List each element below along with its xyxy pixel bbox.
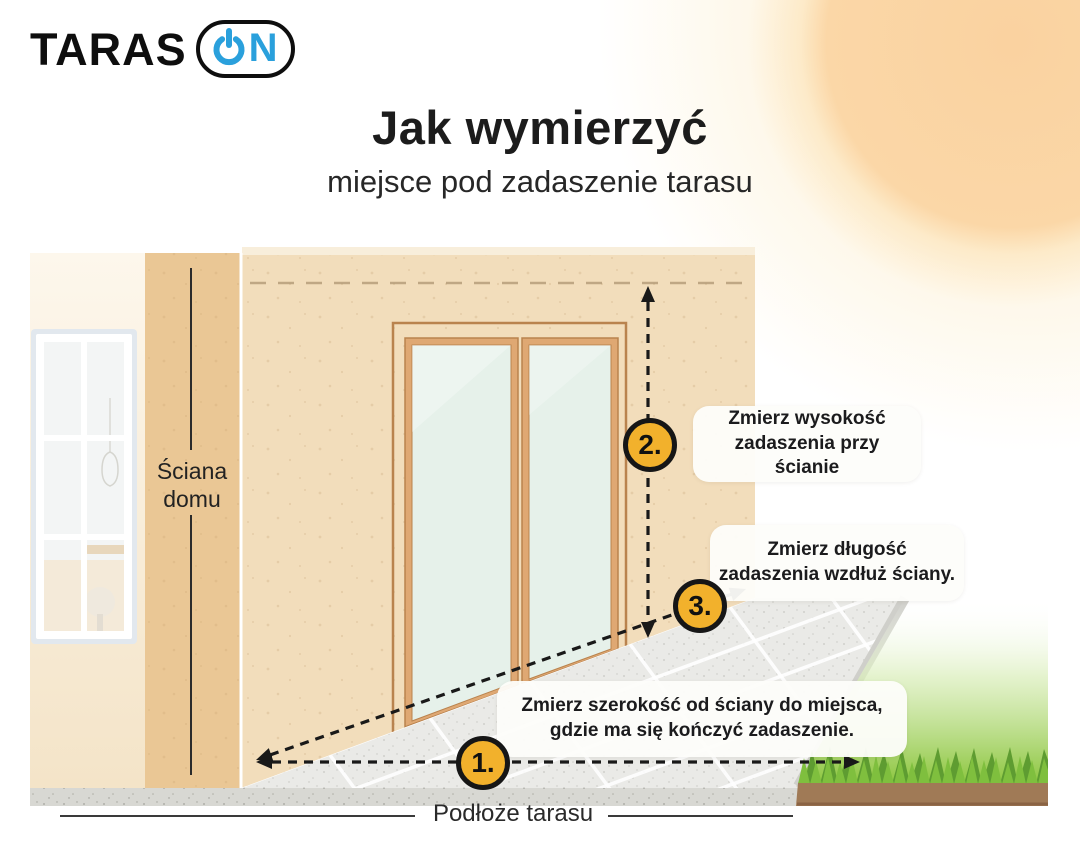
brand-logo: TARAS N [30, 20, 295, 78]
wall-label-line2: domu [163, 486, 221, 512]
step-2-text-line2: zadaszenia przy ścianie [701, 432, 913, 481]
brand-pill: N [196, 20, 295, 78]
brand-name: TARAS [30, 27, 187, 72]
step-1-text-line2: gdzie ma się kończyć zadaszenie. [505, 719, 899, 744]
step-1-badge: 1. [456, 736, 510, 790]
step-1-text-line1: Zmierz szerokość od ściany do miejsca, [505, 694, 899, 719]
step-2-badge: 2. [623, 418, 677, 472]
page-subtitle: miejsce pod zadaszenie tarasu [0, 164, 1080, 200]
heading-block: Jak wymierzyć miejsce pod zadaszenie tar… [0, 100, 1080, 200]
brand-pill-letter: N [249, 28, 278, 68]
floor-label: Podłoże tarasu [418, 800, 608, 828]
step-3-note: Zmierz długość zadaszenia wzdłuż ściany. [710, 525, 964, 601]
power-icon [210, 28, 248, 70]
window [31, 329, 137, 644]
step-1-note: Zmierz szerokość od ściany do miejsca, g… [497, 681, 907, 757]
infographic-canvas: TARAS N Jak wymierzyć miejsce pod zadasz… [0, 0, 1080, 850]
wall-label: Ściana domu [143, 458, 241, 513]
step-3-text-line1: Zmierz długość [718, 538, 956, 563]
page-title: Jak wymierzyć [0, 100, 1080, 155]
step-2-text-line1: Zmierz wysokość [701, 407, 913, 432]
step-2-note: Zmierz wysokość zadaszenia przy ścianie [693, 406, 921, 482]
step-3-text-line2: zadaszenia wzdłuż ściany. [718, 563, 956, 588]
wall-label-line1: Ściana [157, 458, 227, 484]
step-3-badge: 3. [673, 579, 727, 633]
